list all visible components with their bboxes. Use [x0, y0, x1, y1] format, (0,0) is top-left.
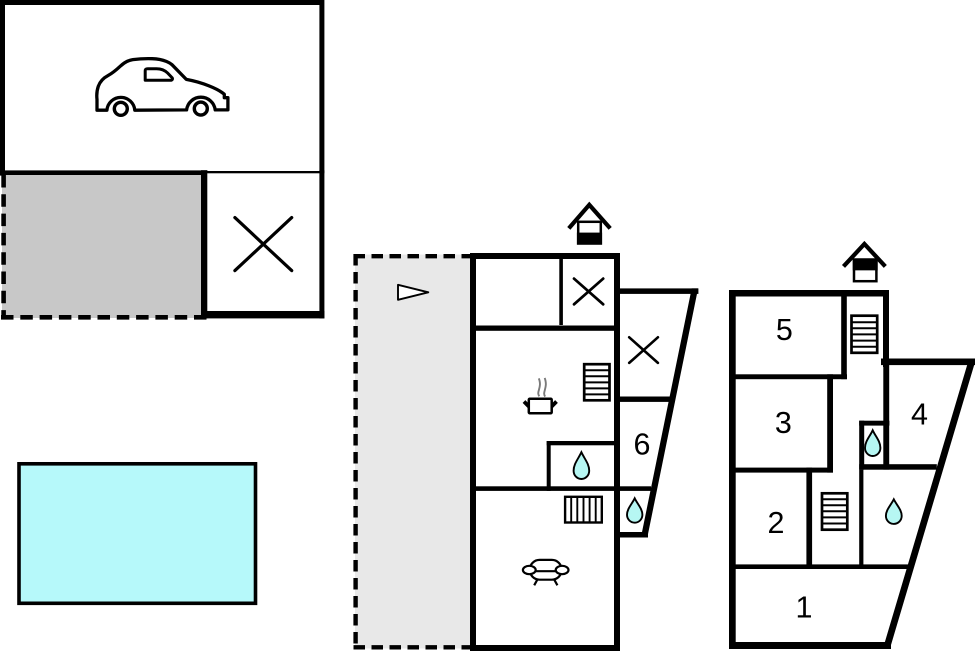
svg-text:2: 2	[768, 506, 785, 540]
svg-text:4: 4	[911, 397, 928, 431]
svg-text:1: 1	[796, 591, 813, 625]
svg-text:3: 3	[775, 406, 792, 440]
svg-text:5: 5	[776, 313, 793, 347]
svg-text:6: 6	[634, 427, 651, 461]
